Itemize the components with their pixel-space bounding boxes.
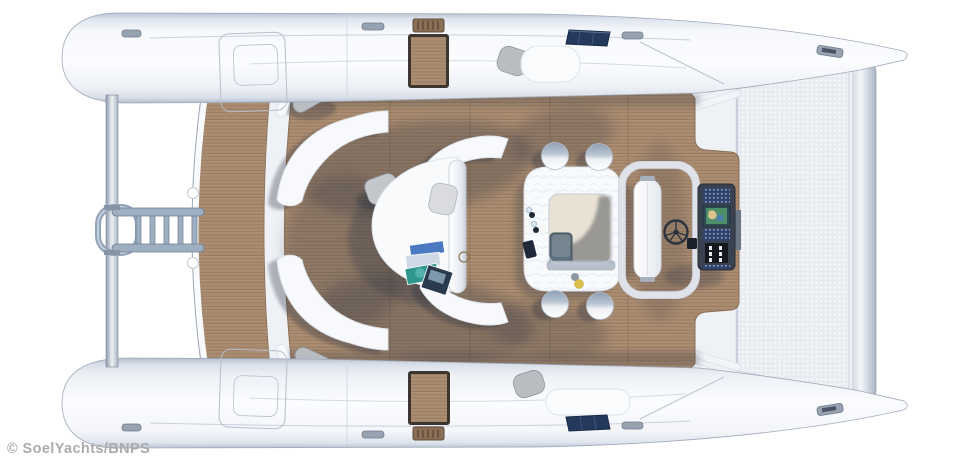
bar-stool [542,291,569,318]
deck-pod [546,389,630,415]
watermark: © SoelYachts/BNPS [7,441,150,457]
galley-skylight-hatch [547,194,615,270]
bar-stool [586,144,613,171]
forward-crossbeam [848,62,876,400]
stern-rail-pole [106,95,118,367]
sunbed [634,176,661,282]
deck-pod [521,46,580,82]
rocker-switches [705,243,728,263]
aft-swim-platform [188,90,271,371]
bar-stool [587,293,614,320]
catamaran-top-view [0,0,962,461]
bar-counter [522,167,621,291]
yacht-render: © SoelYachts/BNPS [0,0,962,461]
helm-console-chartplotter [698,184,741,270]
switch-panel [703,188,730,203]
bar-stool [542,143,569,170]
platform-notch [188,258,199,269]
platform-notch [188,188,199,199]
switch-panel [703,229,730,241]
throttle-box [687,238,697,249]
